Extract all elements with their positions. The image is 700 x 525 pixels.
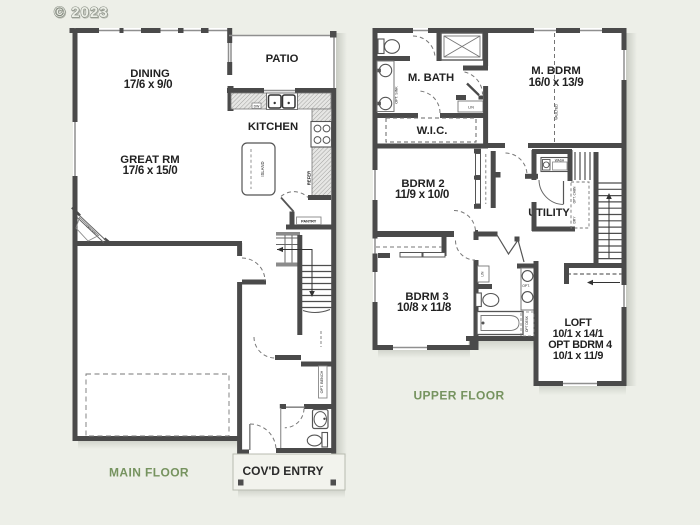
svg-text:OPT. CABN: OPT. CABN bbox=[573, 186, 577, 204]
svg-text:OPT. SINK: OPT. SINK bbox=[395, 86, 399, 104]
svg-text:PATIO: PATIO bbox=[266, 53, 299, 65]
svg-text:10/1 x 11/9: 10/1 x 11/9 bbox=[553, 350, 603, 362]
svg-text:W.I.C.: W.I.C. bbox=[417, 125, 448, 137]
svg-text:17/6 x 9/0: 17/6 x 9/0 bbox=[124, 78, 173, 91]
svg-text:PANTRY: PANTRY bbox=[301, 220, 317, 224]
svg-text:M. BATH: M. BATH bbox=[408, 72, 454, 84]
svg-text:16/0 x 13/9: 16/0 x 13/9 bbox=[529, 76, 585, 89]
svg-text:UPPER FLOOR: UPPER FLOOR bbox=[413, 389, 504, 403]
svg-text:REFER: REFER bbox=[307, 171, 312, 185]
svg-text:© 2023: © 2023 bbox=[54, 4, 109, 21]
svg-text:OPT.: OPT. bbox=[522, 284, 530, 288]
svg-text:VAULTED: VAULTED bbox=[555, 104, 559, 120]
svg-text:OPT DESK: OPT DESK bbox=[525, 315, 529, 332]
svg-text:COV'D ENTRY: COV'D ENTRY bbox=[242, 464, 323, 478]
svg-text:10/8 x 11/8: 10/8 x 11/8 bbox=[397, 301, 452, 314]
svg-text:DRY: DRY bbox=[573, 216, 577, 224]
svg-text:DW: DW bbox=[254, 105, 260, 109]
svg-text:OPT. BENCH: OPT. BENCH bbox=[320, 370, 324, 393]
svg-text:WASH: WASH bbox=[555, 159, 565, 163]
svg-text:KITCHEN: KITCHEN bbox=[248, 121, 298, 133]
svg-text:LIN: LIN bbox=[481, 271, 485, 277]
svg-text:11/9 x 10/0: 11/9 x 10/0 bbox=[395, 188, 449, 201]
svg-text:ISLAND: ISLAND bbox=[260, 161, 265, 176]
svg-text:17/6 x 15/0: 17/6 x 15/0 bbox=[123, 164, 178, 177]
svg-text:LIN: LIN bbox=[468, 106, 474, 110]
svg-text:MAIN FLOOR: MAIN FLOOR bbox=[109, 466, 189, 480]
